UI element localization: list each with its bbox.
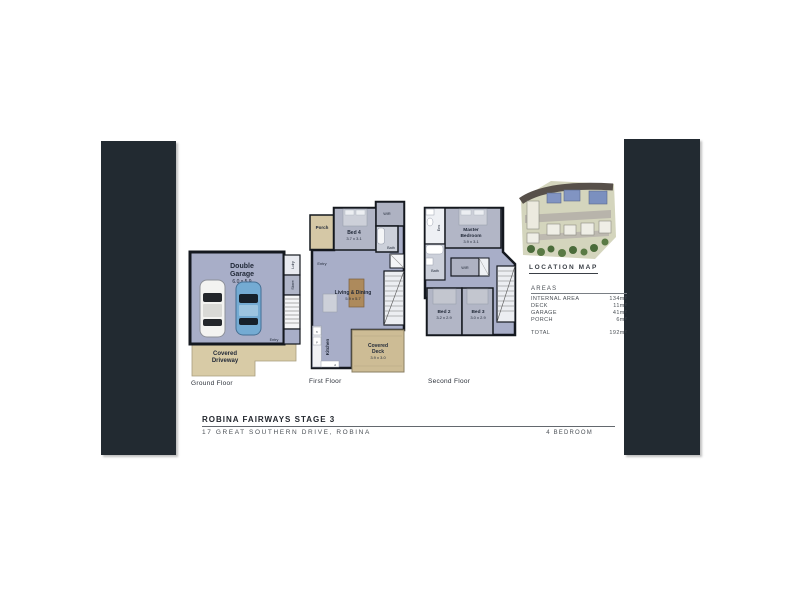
first-floor-plan: Porch Bed 4 3.7 x 3.1 WIR Bath Entry Liv…: [308, 199, 408, 374]
ground-entry-nook: [284, 329, 300, 344]
second-floor-plan: Ens Master Bedroom 3.9 x 3.1 Bath WIR Be…: [421, 202, 521, 342]
bed4-dims: 3.7 x 3.1: [346, 236, 362, 241]
title-block: ROBINA FAIRWAYS STAGE 3 17 GREAT SOUTHER…: [202, 415, 615, 436]
master-label-1: Master: [463, 227, 479, 233]
deck-dims: 3.9 x 3.0: [370, 355, 386, 360]
areas-value: 41m²: [613, 310, 627, 317]
linen-box: [390, 254, 404, 268]
bedroom-count: 4 BEDROOM: [546, 430, 615, 436]
living-dims: 5.9 x 5.7: [345, 296, 361, 301]
right-accent-panel: [624, 139, 700, 455]
second-wir-label: WIR: [461, 266, 469, 270]
areas-label: PORCH: [531, 317, 553, 324]
property-address: 17 GREAT SOUTHERN DRIVE, ROBINA: [202, 429, 371, 436]
areas-value: 6m²: [616, 317, 627, 324]
second-linen-box: [479, 258, 489, 276]
bed2-dims: 3.2 x 2.9: [436, 315, 452, 320]
title-rule: [202, 426, 615, 427]
entry-label: Entry: [317, 261, 326, 266]
areas-table: AREAS INTERNAL AREA 134m² DECK 11m² GARA…: [531, 286, 627, 337]
areas-header: AREAS: [531, 286, 627, 294]
covered-driveway: [192, 344, 296, 376]
areas-row-porch: PORCH 6m²: [531, 317, 627, 324]
wir-label: WIR: [383, 212, 391, 216]
second-floor-caption: Second Floor: [428, 378, 470, 385]
second-bath-label: Bath: [431, 269, 439, 273]
page-title: ROBINA FAIRWAYS STAGE 3: [202, 415, 615, 424]
areas-label: GARAGE: [531, 310, 557, 317]
areas-total-label: TOTAL: [531, 330, 550, 337]
areas-row-total: TOTAL 192m²: [531, 330, 627, 337]
store-label: Store: [290, 279, 295, 289]
driveway-label-1: Covered: [213, 351, 237, 357]
white-car: [200, 280, 225, 337]
left-accent-panel: [101, 141, 176, 455]
areas-total-value: 192m²: [609, 330, 627, 337]
garage-label-1: Double: [230, 263, 254, 270]
areas-row-internal: INTERNAL AREA 134m²: [531, 296, 627, 303]
sofa: [323, 294, 337, 312]
bed3-bed: [467, 289, 488, 304]
driveway-label-2: Driveway: [212, 358, 239, 364]
ground-floor-plan: Covered Driveway Double Garage 6.0 x 5.9…: [185, 249, 305, 381]
garage-label-2: Garage: [230, 271, 254, 278]
first-floor-caption: First Floor: [309, 378, 342, 385]
areas-row-garage: GARAGE 41m²: [531, 310, 627, 317]
laundry-label: Ldry: [290, 261, 295, 269]
porch: [310, 215, 334, 250]
blue-car: [236, 282, 261, 335]
bed2-bed: [433, 289, 456, 304]
location-map-image: [517, 177, 623, 263]
first-stairs: [384, 271, 404, 325]
ground-stairs: [284, 295, 300, 329]
bed3-dims: 3.0 x 2.9: [470, 315, 486, 320]
garage-entry-label: Entry: [270, 338, 279, 342]
master-dims: 3.9 x 3.1: [463, 239, 479, 244]
location-map-caption: LOCATION MAP: [529, 264, 598, 274]
ensuite-label: Ens: [437, 225, 441, 232]
kitchen-label: Kitchen: [325, 339, 330, 356]
areas-value: 134m²: [609, 296, 627, 303]
areas-label: DECK: [531, 303, 548, 310]
ground-floor-caption: Ground Floor: [191, 380, 233, 387]
areas-row-deck: DECK 11m²: [531, 303, 627, 310]
areas-label: INTERNAL AREA: [531, 296, 579, 303]
bath-label: Bath: [387, 246, 395, 250]
porch-label: Porch: [316, 225, 329, 230]
fridge-label: fr: [316, 330, 318, 334]
areas-value: 11m²: [613, 303, 627, 310]
second-stairs: [497, 266, 515, 322]
